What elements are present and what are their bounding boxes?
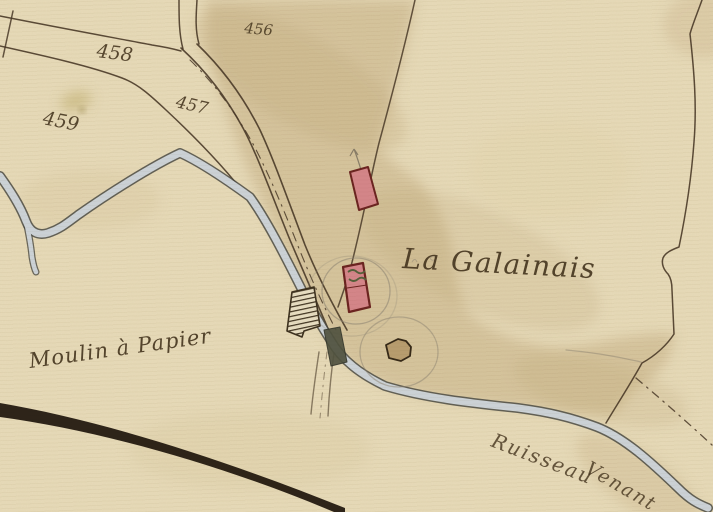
map-canvas: 458 456 457 459 La Galainais Moulin à Pa… [0,0,713,512]
tan-farm-building-icon [386,339,411,361]
parcel-number-458: 458 [94,40,134,66]
cadastral-map-scan: 458 456 457 459 La Galainais Moulin à Pa… [0,0,713,512]
parcel-number-456: 456 [243,19,275,40]
